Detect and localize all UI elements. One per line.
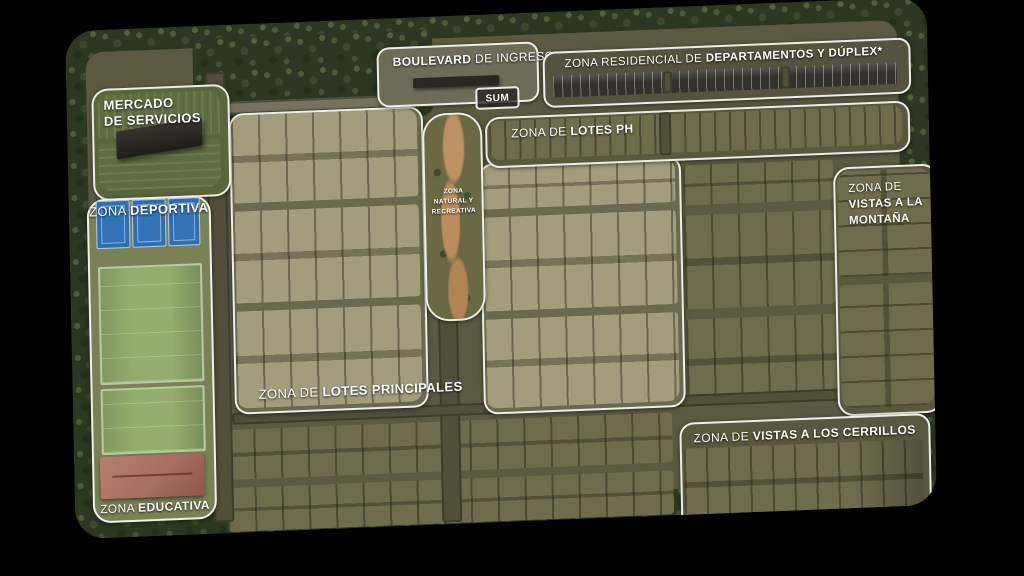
entrance-building [413,75,499,88]
zone-label-mercado: MERCADO DE SERVICIOS [103,94,201,129]
lot-block [684,439,924,522]
sum-building-tag[interactable]: SUM [475,86,519,110]
school-building [100,453,205,499]
lot-block [482,210,678,312]
lot-block [684,210,836,310]
zone-label-montana: ZONA DE VISTAS A LA MONTAÑA [848,178,923,229]
lot-block [231,108,419,203]
masterplan-stage: ZONA DE LOTES PRINCIPALES ZONA DE LOTES … [0,0,1024,576]
sports-field [101,385,206,455]
road [781,66,790,88]
sum-label: SUM [485,92,509,104]
aerial-photo: ZONA DE LOTES PRINCIPALES ZONA DE LOTES … [65,0,937,539]
zone-label-natural: ZONA NATURAL Y RECREATIVA [425,186,482,217]
lot-block [839,282,935,409]
zone-deportiva-educativa[interactable]: ZONA DEPORTIVA ZONA EDUCATIVA [87,195,218,524]
lot-block [484,312,680,409]
zone-lotes-principales-right[interactable] [479,156,686,415]
zone-vistas-cerrillos[interactable]: ZONA DE VISTAS A LOS CERRILLOS [679,413,932,530]
zone-label-boulevard: BOULEVARD DE INGRESO [393,49,555,69]
lot-block [233,204,421,303]
zone-lotes-principales-left[interactable]: ZONA DE LOTES PRINCIPALES [229,106,429,415]
zone-label-educativa: ZONA EDUCATIVA [95,498,215,517]
zone-natural-recreativa[interactable]: ZONA NATURAL Y RECREATIVA [422,112,486,322]
zone-vistas-montana[interactable]: ZONA DE VISTAS A LA MONTAÑA [833,163,937,416]
zone-mercado-servicios[interactable]: MERCADO DE SERVICIOS [91,84,231,202]
lot-block [683,160,834,206]
sports-field [98,263,204,385]
background-lots-right [683,160,838,406]
road [663,71,672,93]
road [659,112,672,155]
